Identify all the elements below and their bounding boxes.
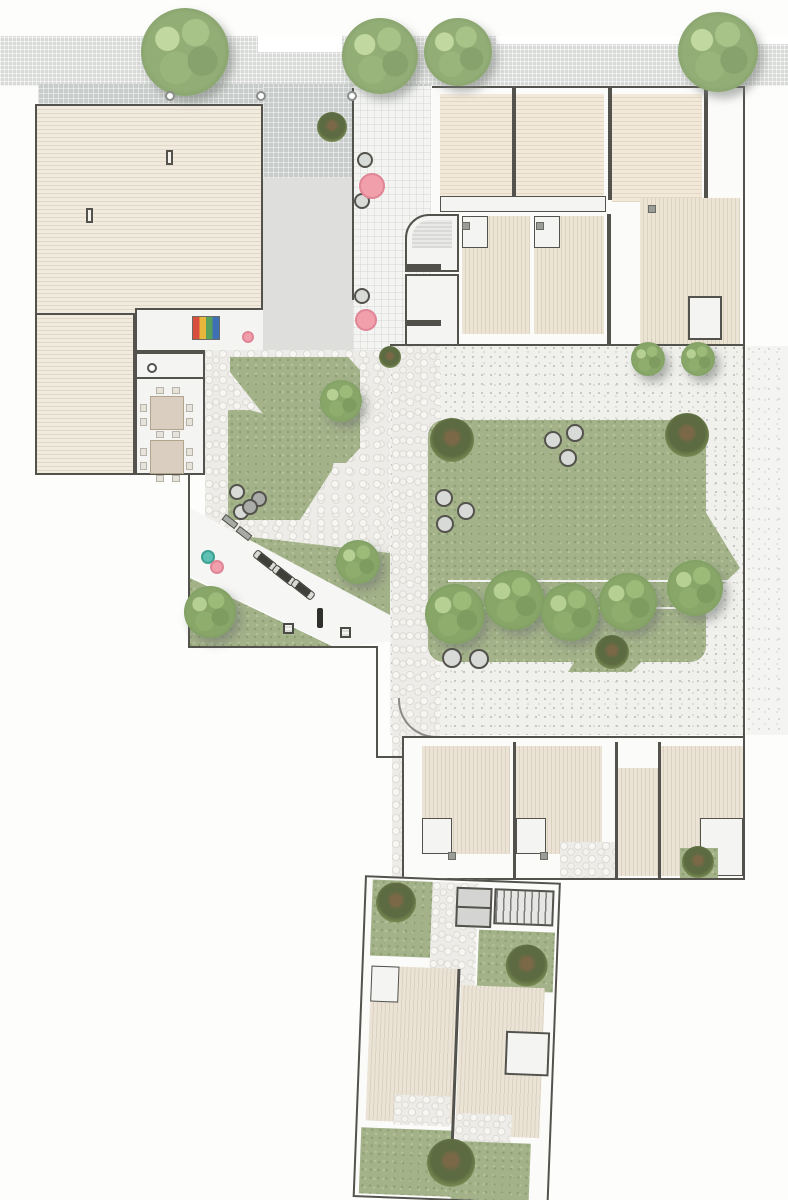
- lawn-stool: [442, 648, 462, 668]
- deck-skylight: [86, 208, 93, 223]
- pink-umbrella-table: [242, 331, 254, 343]
- bath-4: [462, 216, 488, 248]
- lawn-stool: [457, 502, 475, 520]
- club-chair: [156, 387, 164, 394]
- street-tree: [141, 8, 229, 96]
- bottom-patio-1: [393, 1095, 450, 1127]
- stair-core: [493, 888, 554, 926]
- gym-tree: [336, 540, 380, 584]
- south-cobble-patch: [560, 842, 618, 878]
- pink-umbrella-table: [355, 309, 377, 331]
- sidewalk-notch: [258, 36, 342, 52]
- street-tree: [678, 12, 758, 92]
- deck-fixture: [540, 852, 548, 860]
- terrace-deck-2: [516, 94, 604, 198]
- bottom-bath-2: [504, 1031, 550, 1077]
- entry-plaza-lower: [263, 178, 353, 355]
- club-chair: [186, 462, 193, 470]
- deck-fixture: [448, 852, 456, 860]
- upper-garden-stool: [229, 484, 245, 500]
- site-plan: [0, 0, 788, 1200]
- gym-south-wall: [188, 646, 378, 648]
- upper-garden-tree: [320, 380, 362, 422]
- club-chair: [172, 387, 180, 394]
- street-tree: [424, 18, 492, 86]
- club-chair: [140, 448, 147, 456]
- lawn-stool: [436, 515, 454, 533]
- bollard: [256, 91, 266, 101]
- planter-shrub: [317, 112, 347, 142]
- clock-icon: [147, 363, 157, 373]
- club-table: [150, 396, 184, 430]
- pink-umbrella-table: [359, 173, 385, 199]
- deck-fixture: [536, 222, 544, 230]
- courtyard-row-tree: [541, 583, 599, 641]
- bollard: [347, 91, 357, 101]
- street-tree: [342, 18, 418, 94]
- south-party-wall-2: [615, 742, 618, 878]
- party-wall-1: [512, 88, 516, 200]
- unit-tiny-label: [407, 264, 441, 270]
- bollard: [165, 91, 175, 101]
- party-wall-4: [607, 214, 611, 344]
- club-chair: [156, 431, 164, 438]
- club-chair: [140, 462, 147, 470]
- unit-tiny-label: [407, 320, 441, 326]
- pullup-post: [317, 608, 323, 628]
- gym-mat: [340, 627, 351, 638]
- courtyard-row-tree: [667, 560, 723, 616]
- bath-6: [688, 296, 722, 340]
- plaza-side-table: [357, 152, 373, 168]
- mid-row-garden-shrub: [682, 846, 714, 878]
- south-bath-1: [422, 818, 452, 854]
- entry-control-room: [405, 274, 459, 352]
- walkway-wall: [352, 88, 354, 300]
- club-chair: [156, 475, 164, 482]
- terrace-deck-3: [612, 94, 702, 202]
- lawn-stool: [559, 449, 577, 467]
- bath-strip: [440, 196, 606, 212]
- terrace-deck-1: [440, 94, 512, 198]
- lawn-stool: [566, 424, 584, 442]
- lawn-corner-shrub: [430, 418, 474, 462]
- south-party-wall-1: [513, 742, 516, 878]
- lawn-stool: [544, 431, 562, 449]
- bottom-bath-1: [370, 966, 399, 1003]
- deck-skylight: [166, 150, 173, 165]
- south-west-wall: [376, 646, 378, 758]
- bath-5: [534, 216, 560, 248]
- gym-stool: [242, 499, 258, 515]
- club-chair: [186, 418, 193, 426]
- club-chair: [172, 475, 180, 482]
- planter-shrub: [379, 346, 401, 368]
- south-connector-wall: [376, 756, 404, 758]
- lawn-stool: [435, 489, 453, 507]
- club-room-divider-wall: [137, 377, 203, 379]
- party-wall-3: [704, 88, 708, 200]
- south-party-wall-3: [658, 742, 661, 878]
- courtyard-row-tree: [425, 584, 485, 644]
- south-deck-3: [618, 768, 658, 876]
- lawn-stool: [469, 649, 489, 669]
- club-chair: [186, 404, 193, 412]
- club-chair: [140, 418, 147, 426]
- club-chair: [172, 431, 180, 438]
- south-bath-2: [516, 818, 546, 854]
- deck-fixture: [648, 205, 656, 213]
- gravel-tree: [631, 342, 665, 376]
- play-structure: [192, 316, 220, 340]
- gym-tree: [184, 586, 236, 638]
- club-chair: [140, 404, 147, 412]
- plaza-side-table: [354, 288, 370, 304]
- bottom-apartment-block: [353, 875, 561, 1200]
- deck-fixture: [462, 222, 470, 230]
- rounded-terrace-hatch: [412, 220, 452, 248]
- roof-deck-wing: [35, 313, 135, 475]
- east-boundary-wall: [743, 86, 745, 736]
- lawn-corner-shrub: [595, 635, 629, 669]
- gravel-tree: [681, 342, 715, 376]
- club-chair: [186, 448, 193, 456]
- gym-mat: [283, 623, 294, 634]
- lawn-corner-shrub: [665, 413, 709, 457]
- bottom-patio-2: [455, 1113, 512, 1143]
- club-table: [150, 440, 184, 474]
- party-wall-2: [608, 88, 612, 200]
- outside-gravel-strip: [746, 346, 788, 735]
- roof-deck-main: [35, 104, 263, 315]
- courtyard-row-tree: [484, 570, 544, 630]
- gym-pink-table: [210, 560, 224, 574]
- courtyard-row-tree: [599, 573, 657, 631]
